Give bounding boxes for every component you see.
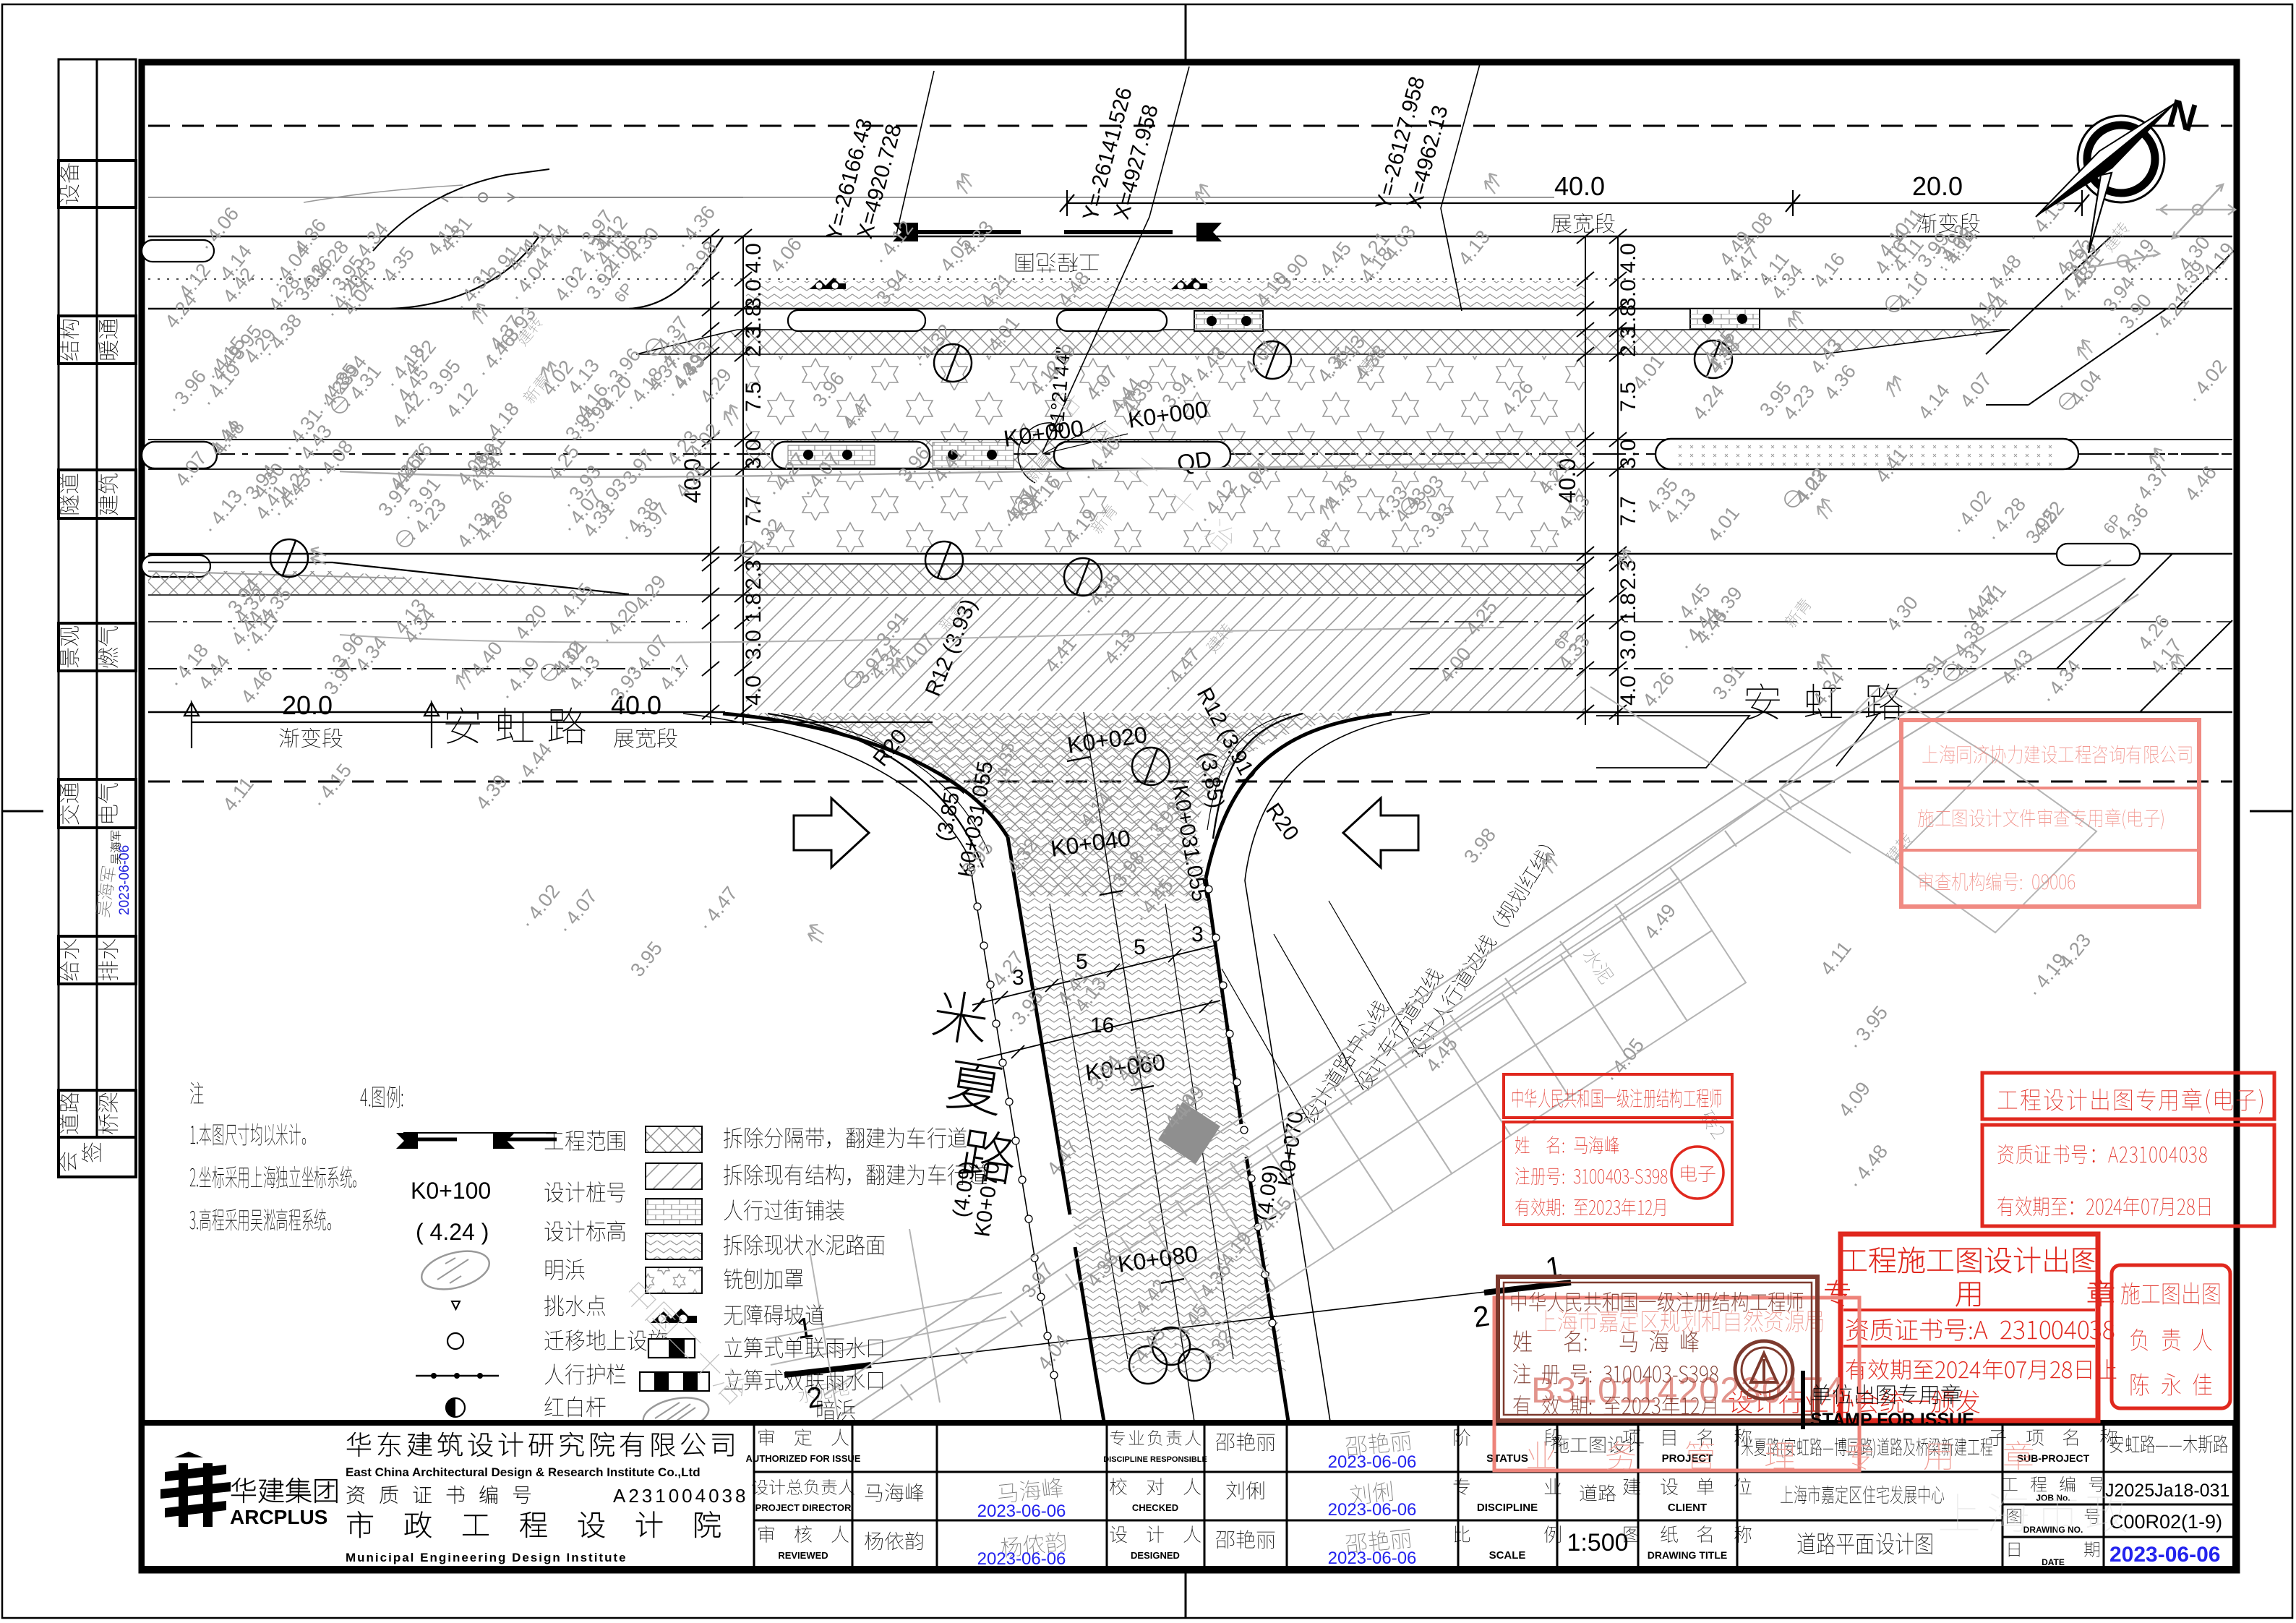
svg-text:3.0: 3.0	[742, 630, 766, 660]
svg-text:PROJECT DIRECTOR: PROJECT DIRECTOR	[755, 1502, 852, 1513]
svg-text:2023-06-06: 2023-06-06	[1328, 1549, 1417, 1568]
svg-text:J2025Ja18-031: J2025Ja18-031	[2105, 1481, 2229, 1501]
svg-text:JOB No.: JOB No.	[2036, 1493, 2070, 1503]
svg-text:DATE: DATE	[2042, 1557, 2065, 1567]
svg-text:2.3: 2.3	[742, 560, 766, 590]
svg-text:2023-06-06: 2023-06-06	[1328, 1500, 1417, 1520]
svg-text:( 4.24 ): ( 4.24 )	[416, 1219, 489, 1245]
svg-text:East China Architectural Desig: East China Architectural Design & Resear…	[346, 1465, 701, 1479]
svg-text:7.7: 7.7	[1616, 496, 1640, 526]
svg-text:7.5: 7.5	[742, 382, 766, 412]
svg-text:2.3: 2.3	[742, 327, 766, 357]
svg-text:DRAWING NO.: DRAWING NO.	[2023, 1525, 2083, 1535]
svg-text:QD: QD	[1175, 446, 1214, 476]
svg-text:SUB-PROJECT: SUB-PROJECT	[2017, 1452, 2090, 1464]
svg-text:2023-06-06: 2023-06-06	[977, 1502, 1066, 1521]
svg-text:1.8: 1.8	[1616, 593, 1640, 623]
svg-text:DESIGNED: DESIGNED	[1131, 1550, 1180, 1561]
svg-text:1:500: 1:500	[1567, 1529, 1628, 1556]
svg-text:CHECKED: CHECKED	[1132, 1502, 1178, 1513]
svg-text:20.0: 20.0	[1912, 171, 1963, 201]
svg-text:2023-06-06: 2023-06-06	[1328, 1452, 1417, 1472]
svg-text:3.0: 3.0	[742, 439, 766, 469]
svg-text:DRAWING TITLE: DRAWING TITLE	[1648, 1549, 1727, 1561]
svg-text:3.0: 3.0	[1616, 630, 1640, 660]
svg-text:C00R02(1-9): C00R02(1-9)	[2109, 1511, 2222, 1533]
svg-text:2.3: 2.3	[1616, 327, 1640, 357]
svg-text:16: 16	[1090, 1014, 1114, 1037]
svg-text:Municipal Engineering Design I: Municipal Engineering Design Institute	[346, 1551, 627, 1564]
svg-text:REVIEWED: REVIEWED	[778, 1550, 828, 1561]
svg-text:CLIENT: CLIENT	[1668, 1502, 1707, 1514]
svg-text:3.0: 3.0	[1616, 439, 1640, 469]
svg-text:ARCPLUS: ARCPLUS	[230, 1506, 327, 1528]
svg-text:STAMP FOR ISSUE: STAMP FOR ISSUE	[1810, 1410, 1974, 1430]
svg-text:20.0: 20.0	[282, 690, 333, 720]
svg-text:K0+100: K0+100	[411, 1178, 491, 1204]
svg-text:2023-06-06: 2023-06-06	[117, 845, 132, 915]
svg-text:DISCIPLINE RESPONSIBLE: DISCIPLINE RESPONSIBLE	[1103, 1455, 1207, 1464]
svg-text:5: 5	[1134, 935, 1146, 959]
svg-text:4.0: 4.0	[742, 675, 766, 706]
svg-text:3: 3	[1191, 922, 1204, 946]
svg-text:A231004038: A231004038	[613, 1485, 748, 1507]
svg-text:B31011420230174: B31011420230174	[1531, 1370, 1845, 1410]
svg-text:4.0: 4.0	[1616, 675, 1640, 706]
svg-text:DISCIPLINE: DISCIPLINE	[1477, 1502, 1538, 1514]
svg-text:7.7: 7.7	[742, 496, 766, 526]
svg-text:1.8: 1.8	[742, 593, 766, 623]
svg-text:SCALE: SCALE	[1489, 1549, 1526, 1562]
svg-text:40.0: 40.0	[1554, 171, 1605, 201]
svg-text:2023-06-06: 2023-06-06	[977, 1549, 1066, 1569]
svg-text:4.0: 4.0	[742, 243, 766, 273]
svg-text:4.0: 4.0	[1616, 243, 1640, 273]
svg-text:AUTHORIZED FOR ISSUE: AUTHORIZED FOR ISSUE	[746, 1453, 861, 1464]
svg-text:2023-06-06: 2023-06-06	[2109, 1543, 2220, 1567]
